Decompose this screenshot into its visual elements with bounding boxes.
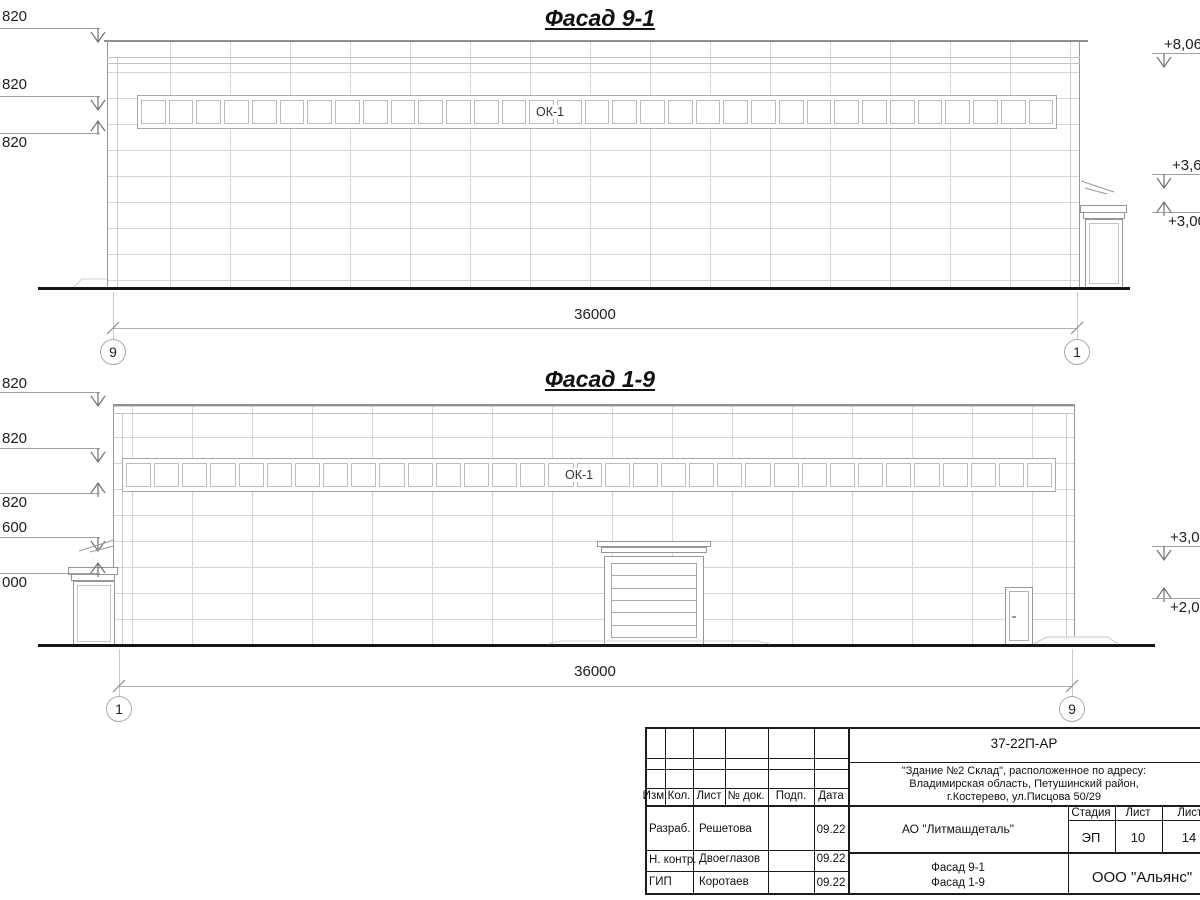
facade2-pilaster-line [1066, 413, 1067, 646]
win [723, 100, 748, 124]
titleblock-date: 09.22 [817, 824, 846, 836]
slat [612, 626, 696, 637]
titleblock-doc-number: 37-22П-АР [991, 736, 1058, 751]
elevation-mark-text: 820 [2, 76, 27, 93]
elevation-arrow-down-icon [89, 96, 107, 116]
win [335, 100, 360, 124]
titleblock-sheet-value: 10 [1131, 830, 1145, 845]
elevation-mark-text: 820 [2, 430, 27, 447]
win [1027, 463, 1052, 487]
slat [612, 589, 696, 601]
facade1-window-type-label: ОК-1 [530, 105, 570, 119]
elevation-mark-shelf [0, 28, 100, 29]
win [779, 100, 804, 124]
win [196, 100, 221, 124]
win [918, 100, 943, 124]
facade2-annex-body [73, 581, 115, 646]
elevation-mark-text: +3,00 [1168, 213, 1200, 230]
titleblock-border [645, 727, 1200, 729]
titleblock-col-list: Лист [697, 790, 722, 802]
titleblock-border [645, 893, 1200, 895]
win [661, 463, 686, 487]
titleblock-address-line3: г.Костерево, ул.Писцова 50/29 [947, 791, 1101, 803]
win [267, 463, 292, 487]
titleblock-date: 09.22 [817, 853, 846, 865]
facade2-wall [113, 404, 1075, 646]
titleblock-col-data: Дата [818, 790, 843, 802]
win [605, 463, 630, 487]
facade2-dimension-text: 36000 [574, 663, 616, 680]
elevation-mark-text: 600 [2, 519, 27, 536]
titleblock-col-izm: Изм. [643, 790, 668, 802]
elevation-mark-text: +8,06 [1164, 36, 1200, 53]
titleblock-line [814, 727, 815, 895]
win [126, 463, 151, 487]
titleblock-col-kol: Кол. [668, 790, 691, 802]
win [408, 463, 433, 487]
titleblock-line [645, 850, 848, 851]
win [774, 463, 799, 487]
facade2-dimension-line [119, 686, 1072, 687]
win [633, 463, 658, 487]
titleblock-line [645, 769, 848, 770]
facade1-dimension-line [113, 328, 1077, 329]
titleblock-date: 09.22 [817, 877, 846, 889]
elevation-mark-text: +3,60 [1172, 157, 1200, 174]
elevation-mark-text: +2,0 [1170, 599, 1200, 616]
win [612, 100, 637, 124]
titleblock-role: Н. контр. [649, 854, 696, 866]
win [999, 463, 1024, 487]
titleblock-sheets-value: 14 [1182, 830, 1196, 845]
facade2-title: Фасад 1-9 [0, 366, 1200, 393]
titleblock-sheets-label: Листов [1177, 807, 1200, 819]
elevation-arrow-down-icon [89, 392, 107, 412]
win [295, 463, 320, 487]
win [520, 463, 545, 487]
elevation-arrow-down-icon [89, 537, 107, 557]
titleblock-line [693, 727, 694, 895]
titleblock-line [1068, 805, 1069, 895]
facade2-gate-leaf [611, 563, 697, 638]
win [446, 100, 471, 124]
elevation-arrow-down-icon [89, 28, 107, 48]
facade2-axis-right: 9 [1059, 696, 1085, 722]
win [689, 463, 714, 487]
win [141, 100, 166, 124]
titleblock-stage-label: Стадия [1071, 807, 1110, 819]
facade2-sectional-gate [604, 556, 704, 645]
titleblock-name: Двоеглазов [699, 853, 760, 865]
titleblock-line [645, 788, 848, 789]
win [307, 100, 332, 124]
facade1-pilaster-line [117, 57, 118, 288]
facade1-axis-left: 9 [100, 339, 126, 365]
win [351, 463, 376, 487]
win [914, 463, 939, 487]
win [239, 463, 264, 487]
titleblock-col-podp: Подп. [776, 790, 807, 802]
facade2-extension-line [1072, 649, 1073, 696]
win [418, 100, 443, 124]
win [858, 463, 883, 487]
elevation-mark-text: 820 [2, 375, 27, 392]
win [834, 100, 859, 124]
titleblock-line [645, 805, 1200, 807]
facade1-ground-line [38, 287, 1130, 290]
elevation-arrow-down-icon [89, 448, 107, 468]
win [802, 463, 827, 487]
elevation-mark-text: +3,0 [1170, 529, 1200, 546]
win [807, 100, 832, 124]
win [492, 463, 517, 487]
slat [612, 601, 696, 613]
elevation-mark-shelf [0, 392, 100, 393]
elevation-arrow-down-icon [1155, 546, 1173, 566]
win [973, 100, 998, 124]
win [502, 100, 527, 124]
titleblock-client: АО "Литмашдеталь" [902, 822, 1014, 836]
facade2-door [1005, 587, 1033, 645]
elevation-mark-shelf [0, 448, 100, 449]
elevation-mark-text: 820 [2, 494, 27, 511]
win [323, 463, 348, 487]
elevation-mark-text: 820 [2, 8, 27, 25]
win [886, 463, 911, 487]
win [280, 100, 305, 124]
facade1-title: Фасад 9-1 [0, 5, 1200, 32]
facade1-annex-panel [1089, 223, 1119, 284]
win [943, 463, 968, 487]
facade1-axis-right: 1 [1064, 339, 1090, 365]
win [862, 100, 887, 124]
facade2-window-band: ОК-1 [122, 458, 1056, 492]
titleblock-address-line2: Владимирская область, Петушинский район, [909, 778, 1138, 790]
titleblock-company: ООО "Альянс" [1092, 869, 1192, 886]
facade2-extension-line [119, 649, 120, 696]
win [1029, 100, 1054, 124]
facade1-canopy-line [1081, 181, 1114, 194]
win [379, 463, 404, 487]
facade2-ground-line [38, 644, 1155, 647]
win [210, 463, 235, 487]
facade1-pilaster-line [1070, 57, 1071, 288]
titleblock-line [725, 727, 726, 805]
win [585, 100, 610, 124]
titleblock-stage-value: ЭП [1082, 830, 1101, 845]
titleblock-line [1162, 805, 1163, 852]
titleblock-name: Решетова [699, 823, 752, 835]
win [474, 100, 499, 124]
win [745, 463, 770, 487]
titleblock-name: Коротаев [699, 876, 749, 888]
elevation-arrow-down-icon [1155, 174, 1173, 194]
drawing-canvas: Фасад 9-1 ОК-1 36000 9 1 820 820 820 +8,… [0, 0, 1200, 900]
facade1-ramp-line [74, 279, 107, 287]
win [890, 100, 915, 124]
win [363, 100, 388, 124]
facade1-parapet-line [107, 57, 1080, 58]
titleblock-line [848, 852, 1200, 854]
win [182, 463, 207, 487]
facade1-extension-line [113, 292, 114, 339]
elevation-mark-text: 820 [2, 134, 27, 151]
titleblock-role: ГИП [649, 876, 672, 888]
elevation-mark-text: 000 [2, 574, 27, 591]
win [154, 463, 179, 487]
titleblock-col-doc: № док. [728, 790, 765, 802]
facade1-extension-line [1077, 292, 1078, 339]
win [640, 100, 665, 124]
titleblock-line [1068, 820, 1200, 821]
elevation-arrow-up-icon [89, 557, 107, 577]
titleblock-line [645, 871, 848, 872]
facade2-door-leaf [1009, 591, 1029, 641]
titleblock-line [848, 727, 850, 895]
win [436, 463, 461, 487]
win [1001, 100, 1026, 124]
facade2-parapet-line [113, 413, 1075, 414]
win [391, 100, 416, 124]
win [830, 463, 855, 487]
win [464, 463, 489, 487]
facade1-dimension-text: 36000 [574, 306, 616, 323]
facade1-parapet-line [107, 63, 1080, 64]
facade2-axis-left: 1 [106, 696, 132, 722]
elevation-arrow-up-icon [89, 115, 107, 135]
facade2-window-type-label: ОК-1 [559, 468, 599, 482]
elevation-arrow-up-icon [89, 477, 107, 497]
titleblock-line [848, 762, 1200, 763]
titleblock-sheet-label: Лист [1126, 807, 1151, 819]
win [668, 100, 693, 124]
slat [612, 576, 696, 588]
win [696, 100, 721, 124]
win [971, 463, 996, 487]
win [751, 100, 776, 124]
win [252, 100, 277, 124]
elevation-arrow-down-icon [1155, 53, 1173, 73]
facade1-window-band: ОК-1 [137, 95, 1057, 129]
titleblock-border [645, 727, 647, 895]
facade1-annex-roof-slab [1083, 212, 1125, 219]
facade1-wall [107, 42, 1080, 288]
win [169, 100, 194, 124]
slat [612, 564, 696, 576]
titleblock-subject-line2: Фасад 1-9 [931, 877, 985, 889]
elevation-mark-shelf [0, 96, 100, 97]
titleblock-line [645, 758, 848, 759]
win [717, 463, 742, 487]
elevation-mark-shelf [0, 537, 100, 538]
titleblock-line [1115, 805, 1116, 852]
win [224, 100, 249, 124]
facade2-gate-canopy [601, 547, 707, 553]
titleblock-line [768, 727, 769, 895]
titleblock-address-line1: "Здание №2 Склад", расположенное по адре… [902, 765, 1146, 777]
facade1-annex-body [1085, 219, 1123, 288]
facade2-annex-panel [77, 585, 111, 642]
win [945, 100, 970, 124]
titleblock-role: Разраб. [649, 823, 690, 835]
facade2-pilaster-line [122, 413, 123, 646]
titleblock-subject-line1: Фасад 9-1 [931, 862, 985, 874]
slat [612, 613, 696, 625]
